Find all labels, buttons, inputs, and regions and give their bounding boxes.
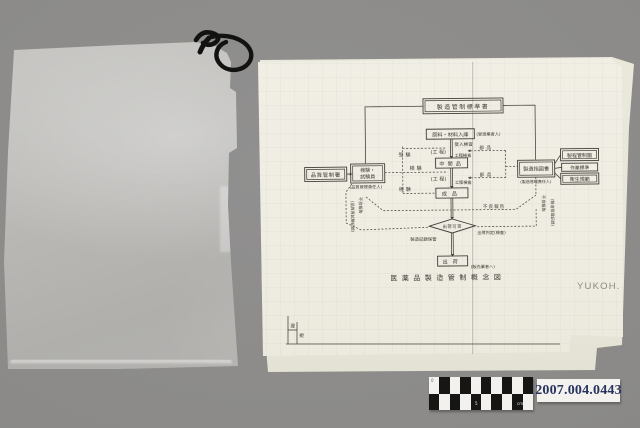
node-finished: 成品 [436,188,468,198]
node-work-standard: 作業標準 [562,163,598,172]
scale-square [502,394,512,411]
scale-square [523,377,533,394]
black-cord [196,32,251,70]
test-label-1: 受験 [398,151,412,158]
material-note: (受渡業者人) [476,130,501,137]
node-inspector: 検験・ 試験員 (品質管理責任人) [349,164,385,191]
scale-square [471,394,481,411]
scale-square [439,377,449,394]
frame-label-2: 規 [299,332,304,339]
left-vert-record: (品質再試験記録) [350,201,356,233]
svg-text:中間品: 中間品 [439,159,464,167]
node-decision: 出荷可否 製造記録保管 出荷判定(検査) [410,218,506,243]
svg-text:衛生規範: 衛生規範 [570,176,590,183]
right-vert-report: 不良報告 [540,195,547,212]
frame-label-1: 理 [290,324,295,330]
svg-text:試験員: 試験員 [360,173,375,180]
svg-text:成品: 成品 [442,189,462,197]
svg-text:出荷: 出荷 [442,257,462,265]
scale-square [471,377,481,394]
svg-text:製造管制標準書: 製造管制標準書 [437,103,490,112]
node-mfg-order: 製造指図書 (製造管理責任人) [518,160,555,184]
node-quality-dept: 品質管制署 [305,167,347,181]
parts2-label: 部品 [480,171,494,178]
judge-note: 出荷判定(検査) [477,229,506,236]
node-process-chart: 製程管制圖 [560,148,598,160]
scale-square [502,377,512,394]
drawing-frame: 理 規 [286,316,560,344]
inspector-note: (品質管理責任人) [350,183,383,190]
fan-line-3 [555,173,561,179]
svg-text:検験・: 検験・ [360,167,375,174]
catalog-number: 2007.004.0443 [535,383,622,399]
ship-note: (販売業者へ) [471,263,496,270]
node-material-in: 原料・材料入庫 (受渡業者人) [426,128,501,139]
svg-text:製程管制圖: 製程管制圖 [567,152,592,159]
node-standard-doc: 製造管制標準書 [423,98,503,114]
defect-report-label: 不良報告 [483,203,505,210]
scale-square [429,394,439,411]
scale-square [491,377,501,394]
scale-square [512,394,522,411]
left-vert-report: 不良報告 [357,197,364,214]
scale-square [523,394,533,411]
fan-line-1 [555,155,561,164]
arrowhead [467,149,470,152]
connector-left [365,106,424,163]
scale-square [460,377,470,394]
fan-line-2 [555,167,562,168]
test-label-3: 検験 [399,186,413,193]
flowchart: 製造管制標準書 品質管制署 検験・ 試験員 (品質管理責任人) [304,97,600,284]
scale-square [429,377,439,394]
photo-scale-bar [429,377,533,410]
connector-right [503,105,536,160]
right-vert-record: (製造管理記録) [550,199,556,227]
scale-square [481,377,491,394]
photo-background: 理 規 製造管制標準書 品質管制署 検 [0,0,640,428]
process1-label: (工 程) [430,149,446,156]
scale-square [450,394,460,411]
scale-square [512,377,522,394]
incoming-inspection-label: 受入検査 [454,141,473,148]
node-intermediate: 中間品 [436,158,468,168]
scale-square [481,394,491,411]
test-label-2: 検験 [410,165,424,172]
diagram-title: 医薬品製造管制概念図 [390,272,505,282]
scale-square [491,394,501,411]
process2-label: (工 程) [431,176,447,183]
scale-square [460,394,470,411]
flowchart-svg: 理 規 製造管制標準書 品質管制署 検 [0,0,640,428]
arrowhead [468,176,471,179]
parts1-label: 部品 [479,144,493,151]
process-inspection2-label: 工程検査 [455,179,473,186]
catalog-label: 2007.004.0443 [537,379,620,402]
publisher-mark: YUKOH. [577,281,621,292]
scale-square [450,377,460,394]
record-note: 製造記録保管 [410,236,437,243]
node-hygiene-standard: 衛生規範 [561,173,599,184]
scale-square [439,394,449,411]
node-ship: 出荷 (販売業者へ) [438,256,496,271]
